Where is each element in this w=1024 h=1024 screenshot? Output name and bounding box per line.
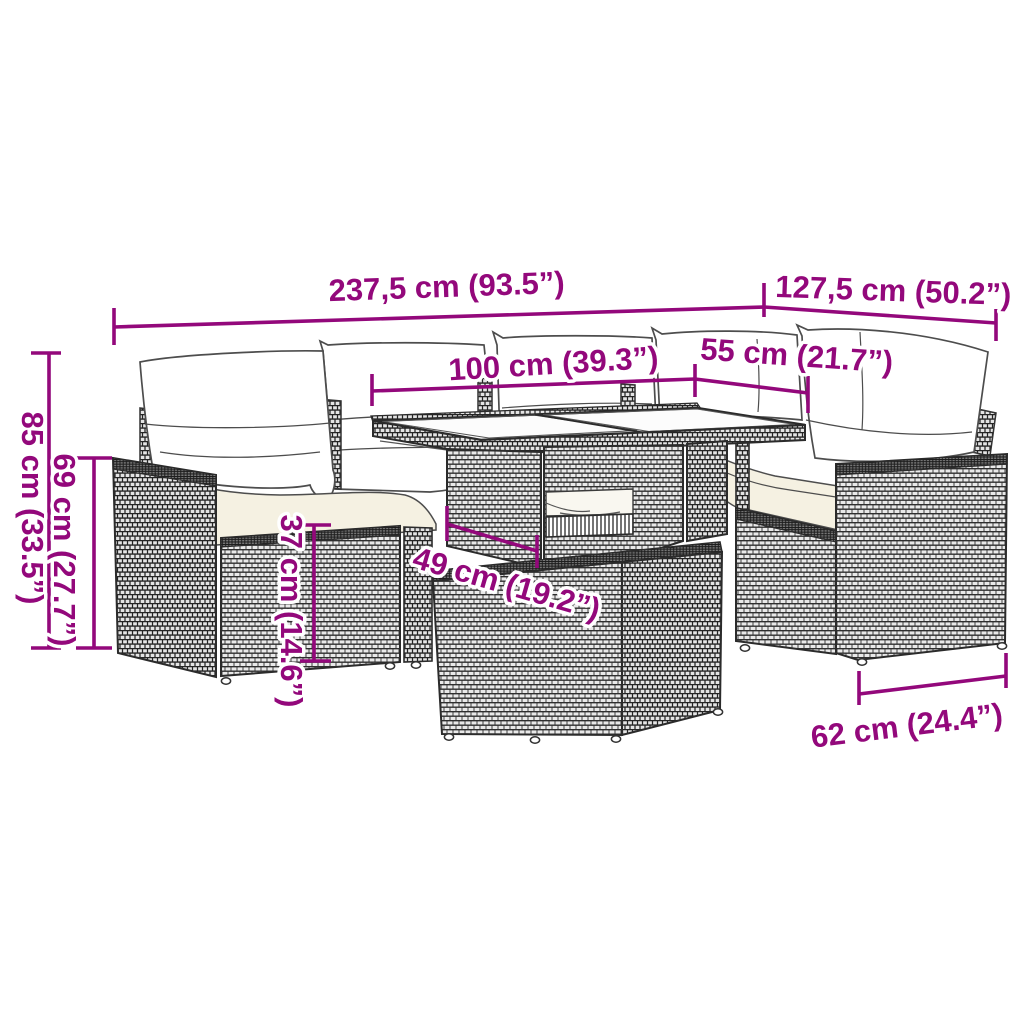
svg-text:85 cm (33.5”): 85 cm (33.5”): [15, 412, 50, 605]
svg-text:69 cm (27.7”): 69 cm (27.7”): [47, 454, 82, 647]
svg-text:37 cm (14.6”): 37 cm (14.6”): [274, 515, 309, 708]
